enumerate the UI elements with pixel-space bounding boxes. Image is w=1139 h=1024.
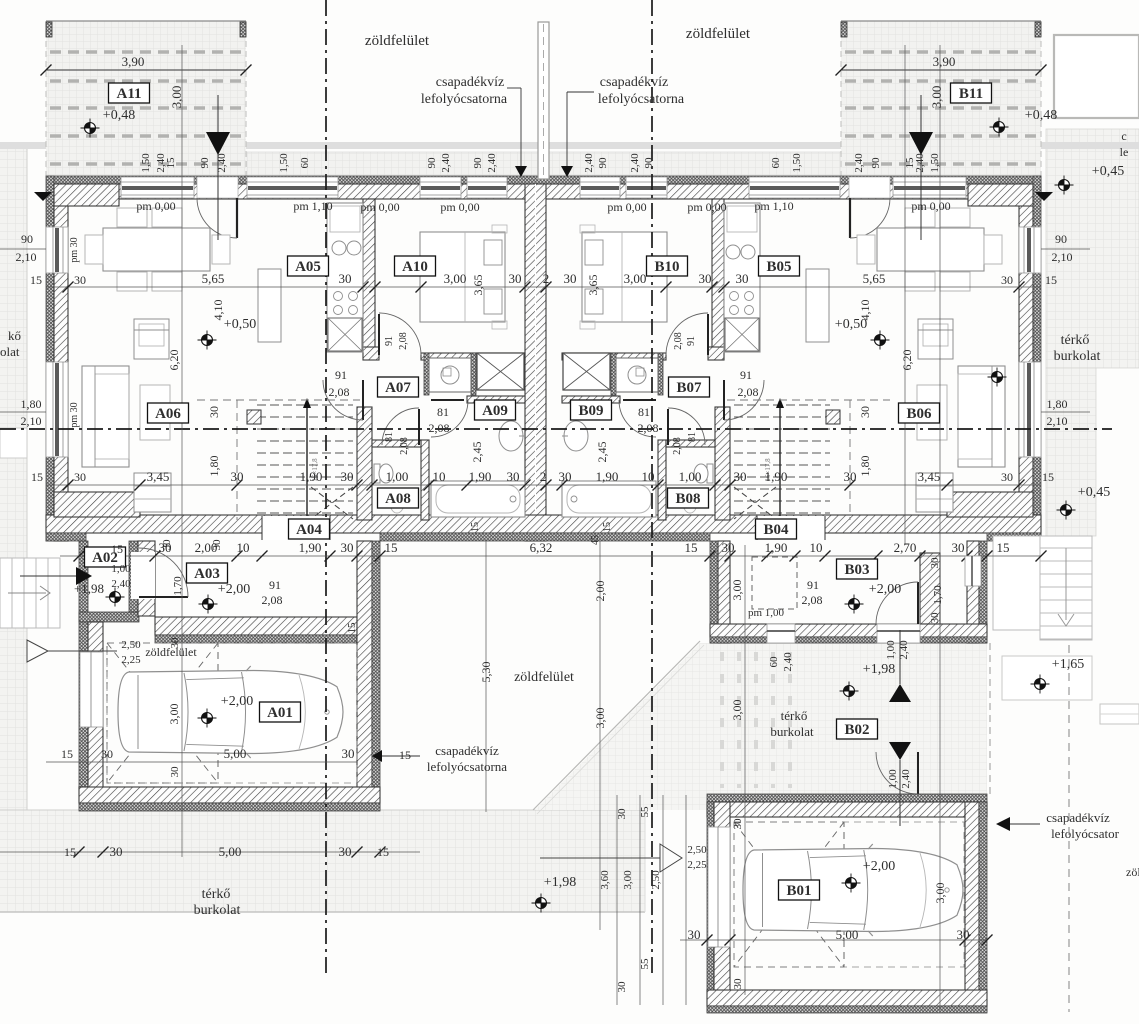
svg-text:30: 30 (844, 469, 857, 484)
svg-text:2: 2 (540, 469, 547, 484)
svg-text:2,50: 2,50 (650, 870, 662, 890)
svg-text:B08: B08 (675, 491, 700, 507)
svg-text:10: 10 (642, 469, 655, 484)
svg-text:30: 30 (688, 927, 701, 942)
svg-text:pm 30: pm 30 (69, 237, 80, 262)
svg-text:90: 90 (870, 157, 882, 169)
svg-text:1,70: 1,70 (932, 585, 944, 605)
svg-text:2,40: 2,40 (629, 153, 641, 173)
svg-text:30: 30 (722, 540, 735, 555)
svg-text:A01: A01 (267, 705, 293, 721)
svg-text:60: 60 (768, 656, 780, 668)
svg-text:30: 30 (616, 981, 628, 993)
svg-text:pm 30: pm 30 (69, 402, 80, 427)
svg-text:2,10: 2,10 (1047, 414, 1068, 428)
svg-text:+2,00: +2,00 (863, 859, 895, 874)
svg-text:15: 15 (111, 542, 123, 556)
svg-text:90: 90 (199, 157, 211, 169)
svg-text:A08: A08 (385, 491, 411, 507)
svg-text:2,08: 2,08 (672, 437, 683, 455)
svg-text:2,40: 2,40 (216, 153, 228, 173)
svg-text:lefolyócsator: lefolyócsator (1051, 826, 1120, 841)
svg-text:30: 30 (509, 271, 522, 286)
svg-text:2,45: 2,45 (595, 442, 609, 463)
svg-text:30: 30 (957, 927, 970, 942)
svg-text:3,65: 3,65 (471, 275, 485, 296)
svg-text:3,00: 3,00 (730, 700, 744, 721)
svg-text:2: 2 (543, 271, 550, 286)
svg-text:2,40: 2,40 (898, 640, 910, 660)
svg-text:60: 60 (770, 157, 782, 169)
svg-text:91: 91 (686, 336, 697, 346)
svg-text:3,00: 3,00 (444, 271, 467, 286)
svg-text:B11: B11 (959, 86, 983, 102)
svg-text:81: 81 (384, 432, 395, 442)
svg-text:+2,00: +2,00 (221, 694, 253, 709)
svg-text:2,70: 2,70 (894, 540, 917, 555)
svg-text:3,45: 3,45 (918, 469, 941, 484)
svg-text:+1,98: +1,98 (74, 581, 104, 596)
svg-text:+1,98: +1,98 (863, 662, 895, 677)
svg-text:2,40: 2,40 (440, 153, 452, 173)
svg-text:A11: A11 (116, 86, 141, 102)
svg-text:+1,65: +1,65 (1052, 657, 1084, 672)
svg-text:pm 0,00: pm 0,00 (911, 199, 950, 213)
svg-text:15: 15 (602, 522, 613, 532)
svg-text:30: 30 (699, 271, 712, 286)
svg-text:30: 30 (339, 844, 352, 859)
svg-text:csapadékvíz: csapadékvíz (436, 75, 504, 90)
svg-text:55: 55 (639, 806, 651, 818)
svg-text:A07: A07 (385, 380, 411, 396)
svg-text:91: 91 (807, 578, 819, 592)
svg-text:2,08: 2,08 (673, 332, 684, 350)
svg-text:3,00: 3,00 (167, 704, 181, 725)
svg-text:pm 0,00: pm 0,00 (607, 200, 646, 214)
svg-text:15: 15 (346, 622, 358, 634)
svg-text:1,00: 1,00 (111, 563, 131, 575)
svg-text:90: 90 (643, 157, 655, 169)
svg-text:30: 30 (507, 469, 520, 484)
svg-text:1,90: 1,90 (765, 469, 788, 484)
svg-text:c: c (1121, 129, 1126, 143)
svg-text:burkolat: burkolat (770, 724, 814, 739)
svg-text:15: 15 (165, 157, 177, 169)
svg-text:pm 0,00: pm 0,00 (687, 200, 726, 214)
svg-text:csapadékvíz: csapadékvíz (435, 743, 499, 758)
svg-text:+2,00: +2,00 (218, 582, 250, 597)
svg-text:90: 90 (472, 157, 484, 169)
svg-text:30: 30 (929, 612, 941, 624)
svg-text:15: 15 (685, 540, 698, 555)
svg-text:A05: A05 (295, 259, 321, 275)
svg-text:30: 30 (1001, 273, 1013, 287)
svg-text:burkolat: burkolat (1054, 349, 1101, 364)
svg-text:6,20: 6,20 (900, 350, 914, 371)
svg-text:A10: A10 (402, 259, 428, 275)
svg-text:1,90: 1,90 (299, 540, 322, 555)
svg-text:1,50: 1,50 (791, 153, 803, 173)
svg-text:2,08: 2,08 (429, 421, 450, 435)
svg-text:2,40: 2,40 (900, 769, 912, 789)
svg-text:térkő: térkő (1061, 333, 1090, 348)
svg-text:3,00: 3,00 (169, 86, 184, 109)
svg-text:30: 30 (211, 539, 223, 551)
svg-text:90: 90 (21, 232, 33, 246)
svg-text:B01: B01 (786, 883, 811, 899)
svg-text:30: 30 (74, 273, 86, 287)
svg-text:5,65: 5,65 (202, 271, 225, 286)
svg-text:1,80: 1,80 (858, 456, 872, 477)
svg-text:B10: B10 (654, 259, 679, 275)
svg-text:30: 30 (952, 540, 965, 555)
svg-text:2,25: 2,25 (687, 859, 707, 871)
svg-text:30: 30 (732, 818, 744, 830)
svg-text:30: 30 (858, 406, 872, 418)
svg-text:5,30: 5,30 (479, 662, 493, 683)
svg-text:+0,45: +0,45 (1078, 485, 1110, 500)
svg-text:15: 15 (399, 748, 411, 762)
svg-text:15: 15 (64, 845, 76, 859)
svg-text:1,80: 1,80 (21, 397, 42, 411)
svg-text:90: 90 (597, 157, 609, 169)
svg-text:6,32: 6,32 (530, 540, 553, 555)
svg-text:90: 90 (1055, 232, 1067, 246)
svg-text:pm 1,10: pm 1,10 (754, 199, 793, 213)
svg-text:3,60: 3,60 (599, 870, 611, 890)
svg-text:30: 30 (169, 766, 181, 778)
svg-text:30: 30 (732, 978, 744, 990)
svg-text:2,50: 2,50 (687, 844, 707, 856)
svg-text:A06: A06 (155, 406, 181, 422)
svg-text:1,00: 1,00 (386, 469, 409, 484)
svg-text:81: 81 (687, 432, 698, 442)
svg-text:+1,98: +1,98 (544, 875, 576, 890)
svg-text:csapadékvíz: csapadékvíz (1046, 810, 1110, 825)
svg-text:15: 15 (470, 522, 481, 532)
svg-text:30: 30 (161, 539, 173, 551)
svg-text:B09: B09 (578, 403, 603, 419)
svg-text:3,90: 3,90 (122, 54, 145, 69)
svg-text:lefolyócsatorna: lefolyócsatorna (427, 759, 507, 774)
svg-text:+0,48: +0,48 (103, 108, 135, 123)
svg-text:15: 15 (377, 845, 389, 859)
svg-text:2,40: 2,40 (583, 153, 595, 173)
svg-text:10: 10 (810, 540, 823, 555)
svg-text:1,00: 1,00 (887, 769, 899, 789)
svg-text:2,08: 2,08 (398, 332, 409, 350)
svg-text:1,00: 1,00 (679, 469, 702, 484)
svg-text:30: 30 (339, 271, 352, 286)
svg-text:1,50: 1,50 (929, 153, 941, 173)
svg-text:A04: A04 (296, 522, 322, 538)
svg-text:30: 30 (341, 540, 354, 555)
svg-text:+0,50: +0,50 (224, 317, 256, 332)
svg-text:3,00: 3,00 (593, 708, 607, 729)
svg-text:2,08: 2,08 (329, 385, 350, 399)
svg-text:lefolyócsatorna: lefolyócsatorna (598, 92, 685, 107)
svg-text:45: 45 (590, 535, 601, 545)
svg-text:térkő: térkő (781, 708, 808, 723)
svg-text:1,90: 1,90 (469, 469, 492, 484)
svg-text:2,08: 2,08 (399, 437, 410, 455)
svg-text:+0,45: +0,45 (1092, 164, 1124, 179)
svg-text:30: 30 (342, 746, 355, 761)
svg-text:10: 10 (237, 540, 250, 555)
svg-text:+0,48: +0,48 (1025, 108, 1057, 123)
svg-text:30: 30 (169, 637, 181, 649)
svg-text:30: 30 (341, 469, 354, 484)
svg-text:pm 0,00: pm 0,00 (360, 200, 399, 214)
svg-text:3,00: 3,00 (933, 883, 947, 904)
svg-text:2,40: 2,40 (853, 153, 865, 173)
svg-text:15: 15 (1045, 273, 1057, 287)
svg-text:5,00: 5,00 (836, 927, 859, 942)
svg-text:3,00: 3,00 (624, 271, 647, 286)
svg-text:81: 81 (437, 405, 449, 419)
svg-text:1,80: 1,80 (1047, 397, 1068, 411)
svg-text:30: 30 (231, 469, 244, 484)
svg-text:30: 30 (734, 469, 747, 484)
svg-text:2,25: 2,25 (121, 654, 141, 666)
svg-text:olat: olat (0, 344, 20, 359)
svg-text:1,90: 1,90 (596, 469, 619, 484)
svg-text:30: 30 (74, 470, 86, 484)
svg-text:15: 15 (904, 157, 916, 169)
svg-text:15: 15 (31, 470, 43, 484)
svg-text:2,08: 2,08 (262, 593, 283, 607)
svg-text:3,00: 3,00 (730, 580, 744, 601)
svg-text:2,00: 2,00 (593, 581, 607, 602)
svg-text:B03: B03 (844, 562, 869, 578)
svg-text:60: 60 (299, 157, 311, 169)
svg-text:30: 30 (110, 844, 123, 859)
svg-text:91: 91 (384, 336, 395, 346)
svg-text:2,08: 2,08 (638, 421, 659, 435)
svg-text:91: 91 (335, 368, 347, 382)
svg-text:30: 30 (929, 557, 941, 569)
svg-text:30: 30 (564, 271, 577, 286)
svg-text:2,40: 2,40 (111, 578, 131, 590)
svg-text:2,10: 2,10 (21, 414, 42, 428)
svg-text:2,40: 2,40 (486, 153, 498, 173)
svg-text:30: 30 (1001, 470, 1013, 484)
svg-text:3,90: 3,90 (933, 54, 956, 69)
svg-text:5,00: 5,00 (224, 746, 247, 761)
svg-text:5,00: 5,00 (219, 844, 242, 859)
svg-text:burkolat: burkolat (194, 903, 241, 918)
svg-text:2,45: 2,45 (470, 442, 484, 463)
svg-text:2,08: 2,08 (738, 385, 759, 399)
svg-text:1,90: 1,90 (300, 469, 323, 484)
svg-text:zöldfelület: zöldfelület (686, 26, 751, 42)
svg-text:térkő: térkő (202, 887, 231, 902)
svg-text:1,00: 1,00 (885, 640, 897, 660)
svg-text:1,80: 1,80 (207, 456, 221, 477)
svg-text:15: 15 (61, 747, 73, 761)
svg-text:90: 90 (426, 157, 438, 169)
svg-text:pm 0,00: pm 0,00 (440, 200, 479, 214)
svg-text:B04: B04 (763, 522, 789, 538)
svg-text:zöldfelület: zöldfelület (365, 33, 430, 49)
svg-text:3,00: 3,00 (622, 870, 634, 890)
svg-text:pm 1,10: pm 1,10 (293, 199, 332, 213)
svg-text:10: 10 (433, 469, 446, 484)
svg-text:15: 15 (997, 540, 1010, 555)
svg-text:B05: B05 (766, 259, 791, 275)
svg-text:csapadékvíz: csapadékvíz (600, 75, 668, 90)
svg-text:30: 30 (616, 808, 628, 820)
svg-text:B07: B07 (676, 380, 702, 396)
svg-text:2,10: 2,10 (16, 250, 37, 264)
svg-text:55: 55 (639, 958, 651, 970)
svg-text:2,40: 2,40 (782, 652, 794, 672)
svg-text:B06: B06 (906, 406, 932, 422)
svg-text:B02: B02 (844, 722, 869, 738)
svg-text:le: le (1120, 145, 1129, 159)
svg-text:kő: kő (8, 328, 21, 343)
svg-text:1,50: 1,50 (278, 153, 290, 173)
svg-text:zöldfelület: zöldfelület (514, 670, 574, 685)
svg-text:5,65: 5,65 (863, 271, 886, 286)
svg-text:15: 15 (1042, 470, 1054, 484)
svg-text:+2,00: +2,00 (869, 582, 901, 597)
svg-text:zöldfelüle: zöldfelüle (1126, 865, 1139, 879)
svg-text:pm 1,00: pm 1,00 (748, 607, 785, 619)
svg-text:3,00: 3,00 (929, 86, 944, 109)
svg-text:pm 0,00: pm 0,00 (136, 199, 175, 213)
svg-text:1,90: 1,90 (765, 540, 788, 555)
svg-text:6,20: 6,20 (167, 350, 181, 371)
svg-text:A09: A09 (482, 403, 508, 419)
svg-text:1,50: 1,50 (140, 153, 152, 173)
svg-text:30: 30 (736, 271, 749, 286)
svg-text:2,50: 2,50 (121, 639, 141, 651)
svg-text:81: 81 (638, 405, 650, 419)
svg-text:30: 30 (101, 747, 113, 761)
svg-text:91: 91 (269, 578, 281, 592)
svg-text:15: 15 (385, 540, 398, 555)
svg-text:lefolyócsatorna: lefolyócsatorna (421, 92, 508, 107)
svg-text:3,45: 3,45 (147, 469, 170, 484)
svg-text:2,08: 2,08 (802, 593, 823, 607)
svg-text:2,10: 2,10 (1052, 250, 1073, 264)
svg-text:+0,50: +0,50 (835, 317, 867, 332)
svg-text:30: 30 (207, 406, 221, 418)
svg-text:30: 30 (559, 469, 572, 484)
svg-text:91: 91 (740, 368, 752, 382)
svg-text:3,65: 3,65 (586, 275, 600, 296)
svg-text:A03: A03 (194, 566, 220, 582)
svg-text:1,70: 1,70 (172, 576, 184, 596)
